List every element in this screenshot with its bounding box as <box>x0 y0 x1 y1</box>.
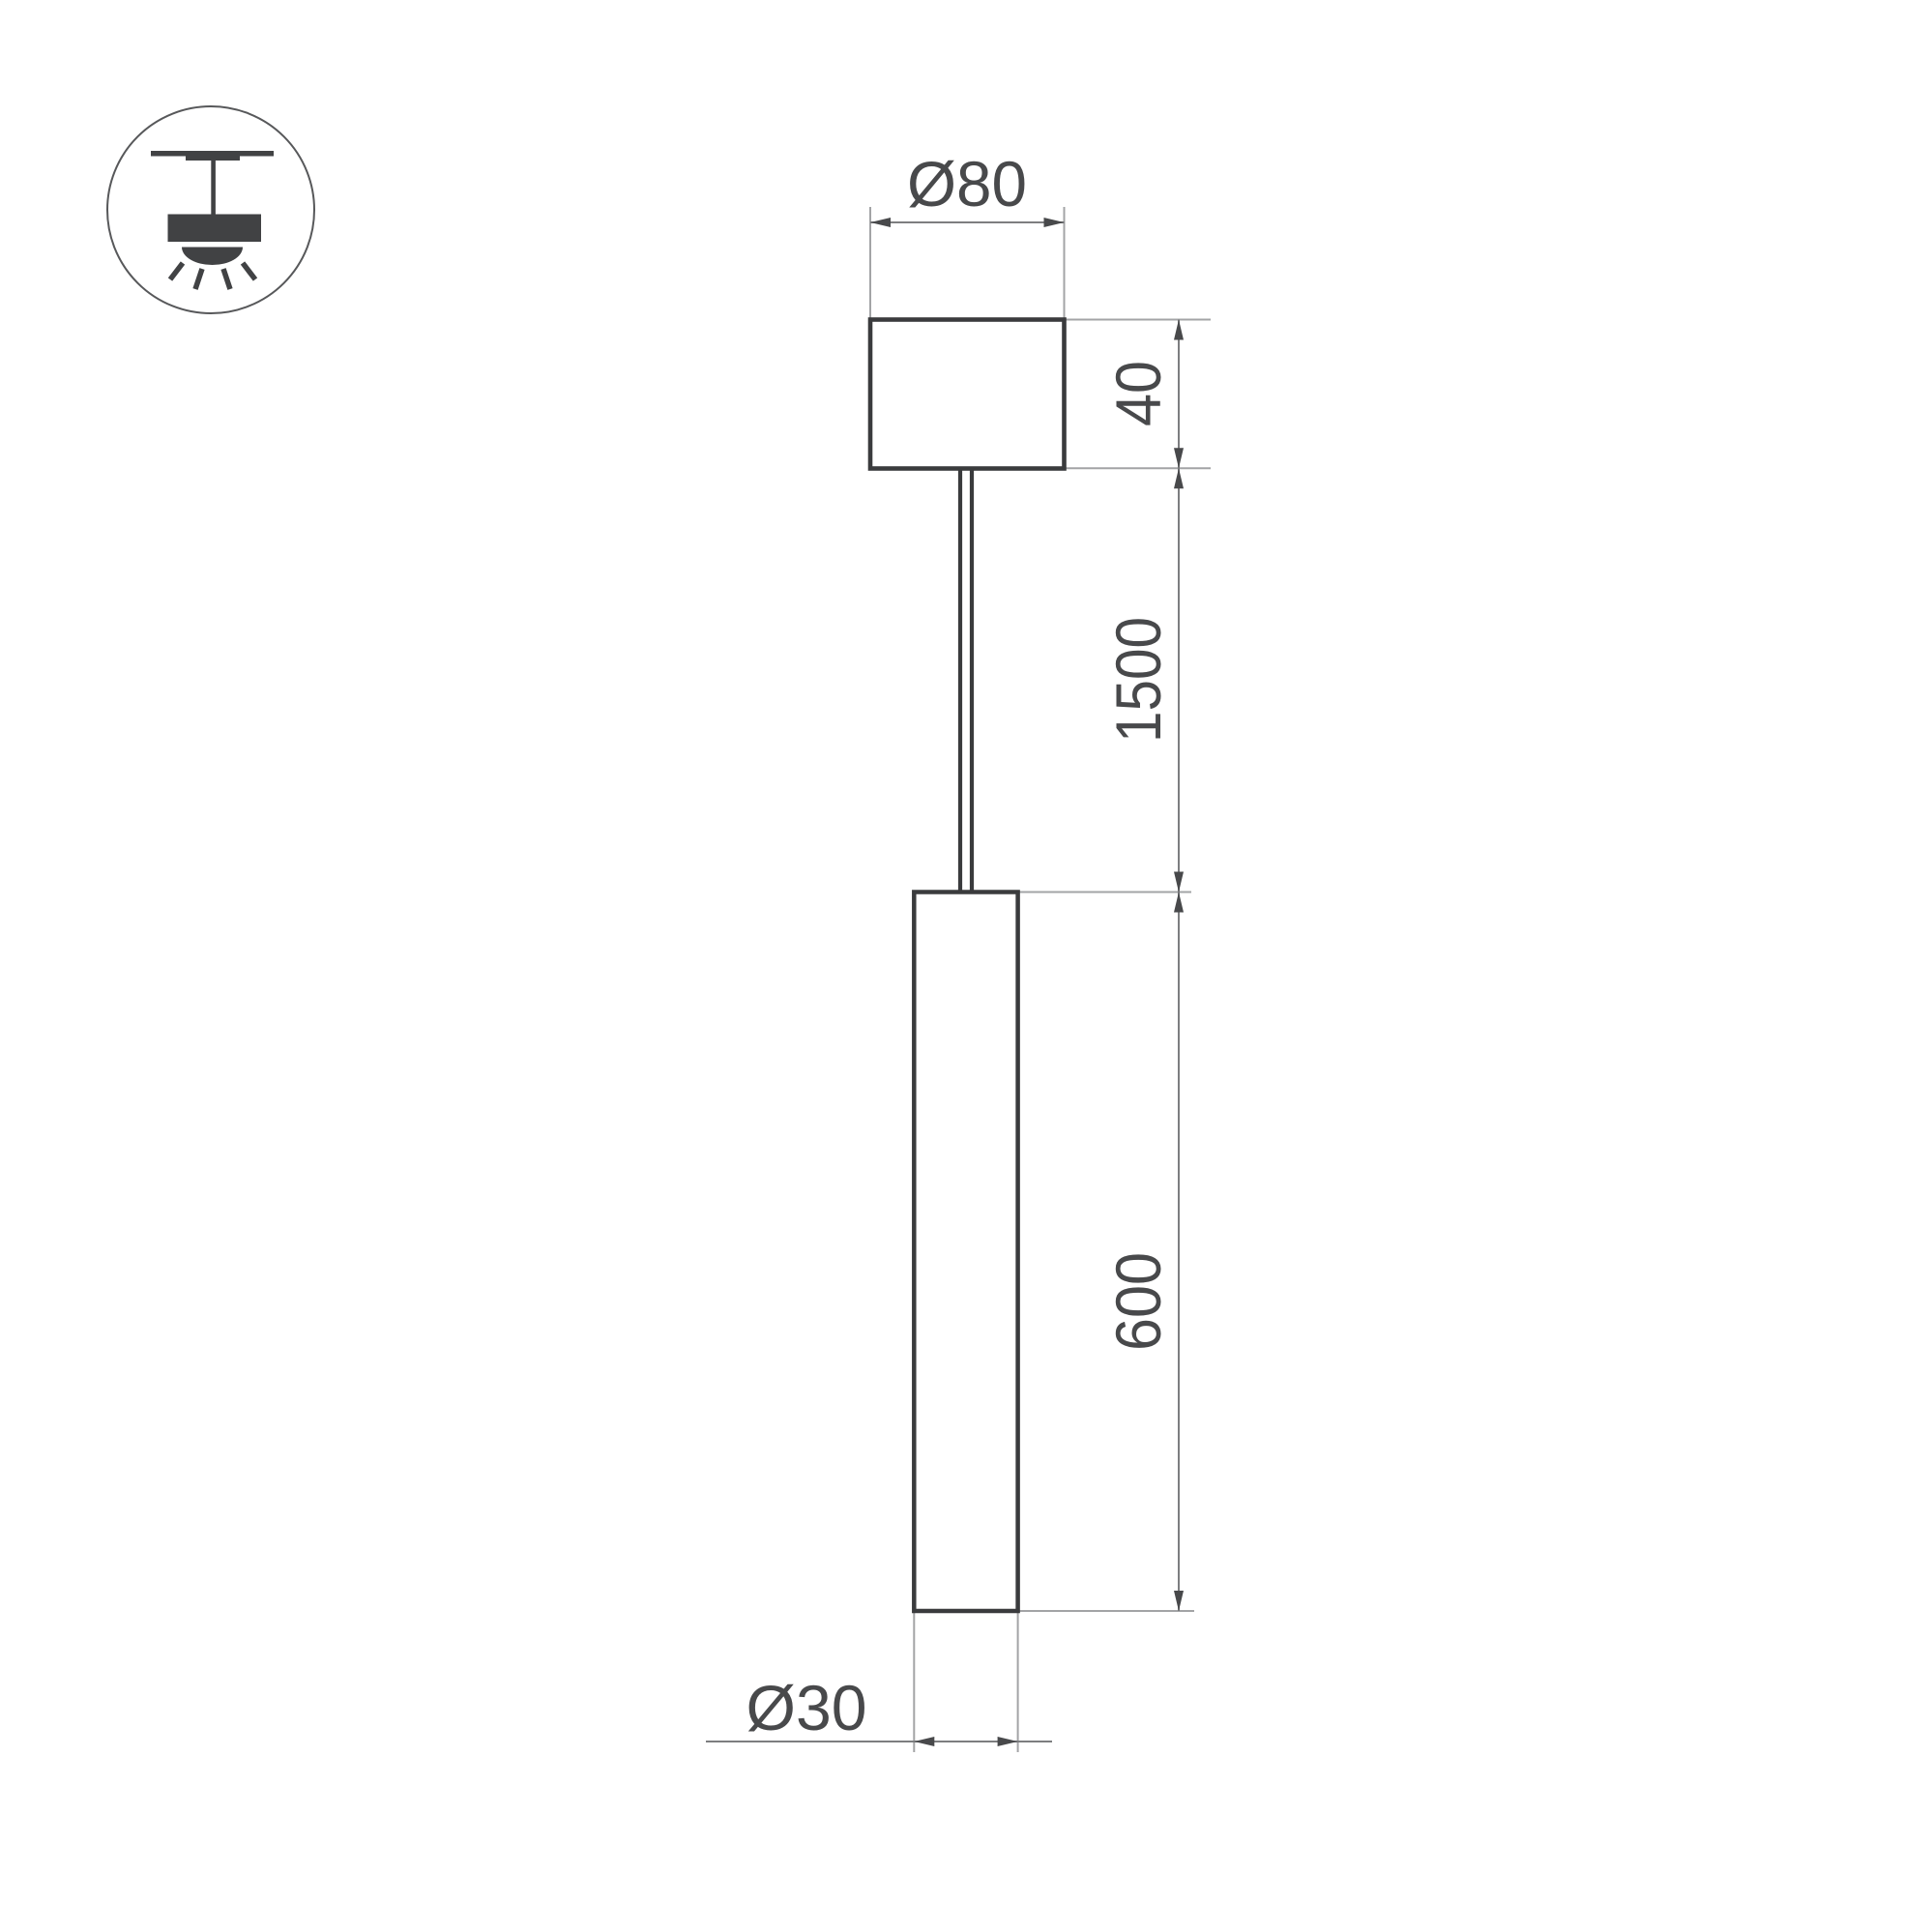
arrowhead-suspension-top <box>1174 468 1184 488</box>
arrowhead-tube-diameter-right <box>998 1737 1018 1746</box>
dim-label-canopy-height: 40 <box>1102 361 1174 426</box>
pendant-ceiling-light-icon <box>107 106 314 313</box>
arrowhead-canopy-height-bottom <box>1174 448 1184 468</box>
technical-drawing: Ø80 40 1500 600 Ø30 <box>0 0 1932 1932</box>
dim-label-tube-diameter: Ø30 <box>746 1672 867 1743</box>
tube-outline <box>914 893 1017 1612</box>
dim-label-suspension-length: 1500 <box>1102 617 1174 743</box>
dim-label-canopy-diameter: Ø80 <box>907 148 1027 220</box>
arrowhead-suspension-bottom <box>1174 872 1184 893</box>
arrowhead-tube-diameter-left <box>914 1737 934 1746</box>
arrowhead-canopy-diameter-left <box>870 218 891 227</box>
icon-stem <box>211 161 216 217</box>
drawing-canvas: Ø80 40 1500 600 Ø30 <box>0 0 1932 1932</box>
icon-mount-plate <box>186 157 240 161</box>
dim-label-tube-length: 600 <box>1102 1252 1174 1351</box>
canopy-outline <box>870 320 1065 469</box>
object-lines <box>870 320 1065 1612</box>
icon-ceiling-bar <box>151 151 274 157</box>
arrowhead-tube-length-top <box>1174 893 1184 913</box>
arrowhead-tube-length-bottom <box>1174 1591 1184 1611</box>
arrowhead-canopy-diameter-right <box>1044 218 1065 227</box>
arrowhead-canopy-height-top <box>1174 320 1184 340</box>
icon-circle <box>107 106 314 313</box>
icon-lamp-body <box>168 215 262 243</box>
